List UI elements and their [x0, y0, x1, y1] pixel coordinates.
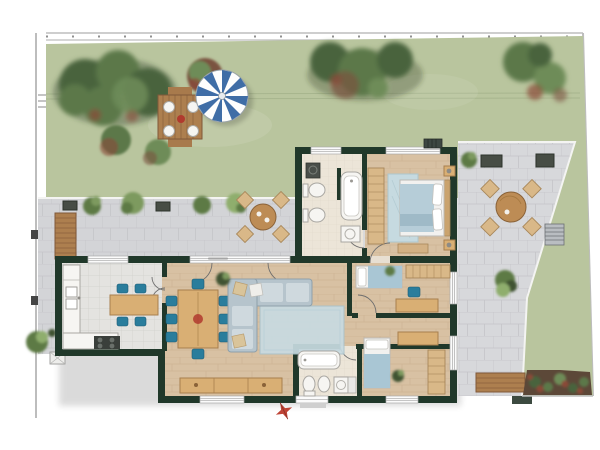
desk [398, 332, 438, 345]
double-bed [400, 180, 450, 236]
step-wall [158, 349, 165, 403]
wardrobe [406, 265, 450, 278]
bath1-partition [337, 168, 341, 200]
wing-left-wall [295, 147, 302, 263]
sofa-cushion [260, 283, 283, 302]
pillow [358, 268, 366, 286]
skylight [63, 201, 77, 210]
floor-plan-svg [0, 0, 600, 450]
skylight [536, 154, 554, 167]
living-bottom-window [200, 396, 244, 403]
burner [110, 338, 115, 343]
blanket [364, 354, 390, 388]
decor [262, 383, 266, 387]
sideboard [180, 378, 282, 393]
cup [265, 218, 270, 223]
bath1-divider-wall [362, 153, 367, 230]
garden-bench [168, 139, 192, 147]
kitchen-sink-basin [66, 287, 77, 297]
garden-bench [168, 87, 192, 95]
decor [194, 383, 198, 387]
pillow [366, 340, 388, 349]
living-right-wall [347, 263, 352, 316]
skylight [156, 202, 170, 211]
cup [257, 212, 262, 217]
throw-pillow [233, 282, 248, 297]
wardrobe [368, 168, 384, 244]
garden-dining-table [158, 87, 202, 147]
plate [164, 126, 175, 137]
bedroom2-wall-stub [352, 313, 358, 318]
kitchen-sink-basin [66, 299, 77, 309]
dining-chair [166, 296, 177, 306]
boundary-post [31, 230, 39, 239]
centerpiece [193, 314, 203, 324]
kitchen-table [110, 295, 158, 315]
main-left-wall [55, 256, 62, 356]
patio-shrub [461, 152, 477, 168]
pillow [432, 209, 442, 231]
washing-machine [348, 377, 356, 393]
kitchen-chair [135, 284, 146, 293]
plate [188, 126, 199, 137]
blanket [368, 266, 402, 288]
drain [350, 180, 353, 183]
pillow [432, 184, 442, 206]
bathroom1-sink [341, 226, 360, 242]
floor-plan-image [0, 0, 600, 450]
foot-bench [398, 244, 428, 253]
desk-chair [408, 287, 420, 297]
burner [98, 338, 103, 343]
living-glass-doors [190, 256, 290, 263]
kitchen-wall-upper [162, 263, 167, 277]
single-bed [356, 266, 402, 288]
bedroom2-bottom-wall [376, 313, 452, 318]
skylight [481, 155, 502, 167]
throw-pillow [232, 334, 246, 348]
bath1-divider-stub [362, 248, 367, 258]
boundary-post [31, 296, 39, 305]
burner [110, 344, 115, 349]
wood-deck [55, 213, 76, 259]
kitchen-chair [117, 284, 128, 293]
kitchen-chair [135, 317, 146, 326]
toilet-tank [304, 391, 315, 396]
throw-pillow [249, 283, 263, 297]
gate-stub [512, 396, 532, 404]
bedroom3-bottom-window [386, 396, 418, 403]
bedroom2-window [450, 272, 457, 304]
center-bowl [177, 115, 185, 123]
bidet-tank [303, 209, 308, 222]
lamp [447, 169, 452, 174]
garden-bench [476, 373, 525, 392]
bedroom3-window [450, 336, 457, 370]
dining-chair [166, 314, 177, 324]
flower-bed [522, 370, 593, 396]
burner [98, 344, 103, 349]
washing-machine [306, 163, 320, 178]
kitchen-chair [117, 317, 128, 326]
tree-cluster-middle [307, 42, 423, 101]
plate [164, 102, 175, 113]
bath2-right-wall [357, 344, 362, 396]
desk [396, 299, 438, 312]
kitchen-bottom-wall [55, 349, 165, 356]
drain [304, 359, 307, 362]
master-door-gap [370, 256, 390, 263]
dining-chair [192, 349, 204, 359]
door-step [300, 404, 326, 408]
vent-grille [424, 139, 442, 148]
toilet-tank [303, 184, 308, 197]
floor-plant [392, 370, 404, 382]
window-label-smudge [208, 257, 228, 259]
living-plant [216, 272, 230, 286]
bathroom1-window [311, 147, 341, 154]
living-rug [260, 306, 344, 354]
kitchen-window [88, 256, 128, 263]
sofa-cushion [232, 306, 253, 326]
dining-chair [192, 279, 204, 289]
living-bottom-door [296, 396, 328, 408]
cup [505, 210, 510, 215]
faucet [78, 297, 81, 300]
kitchen-wall-lower [162, 303, 167, 351]
single-bed [364, 338, 390, 388]
bistro-table [250, 204, 276, 230]
grate [545, 224, 564, 245]
bed-throw [400, 214, 434, 226]
wardrobe [428, 350, 445, 394]
parasol-pole [219, 93, 226, 100]
toilet [309, 183, 325, 197]
bidet [318, 376, 330, 392]
desk-plant [385, 266, 395, 276]
bidet [309, 208, 325, 222]
toilet [303, 376, 315, 392]
lamp [447, 243, 452, 248]
sofa-cushion [286, 283, 309, 302]
dining-chair [166, 332, 177, 342]
headboard [444, 180, 450, 236]
